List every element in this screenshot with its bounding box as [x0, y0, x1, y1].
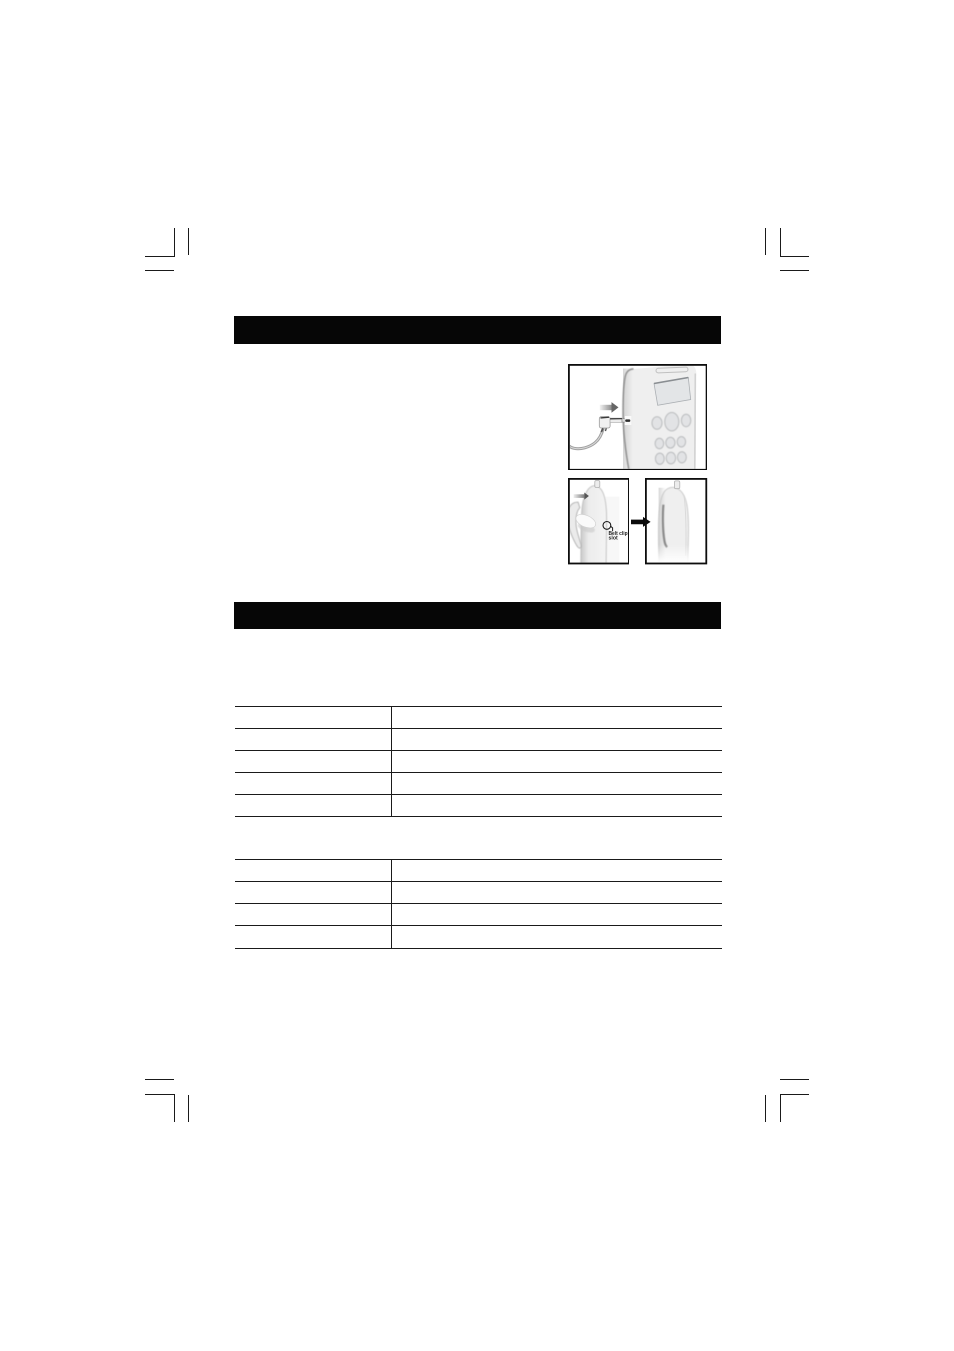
svg-text:slot: slot [608, 536, 617, 542]
